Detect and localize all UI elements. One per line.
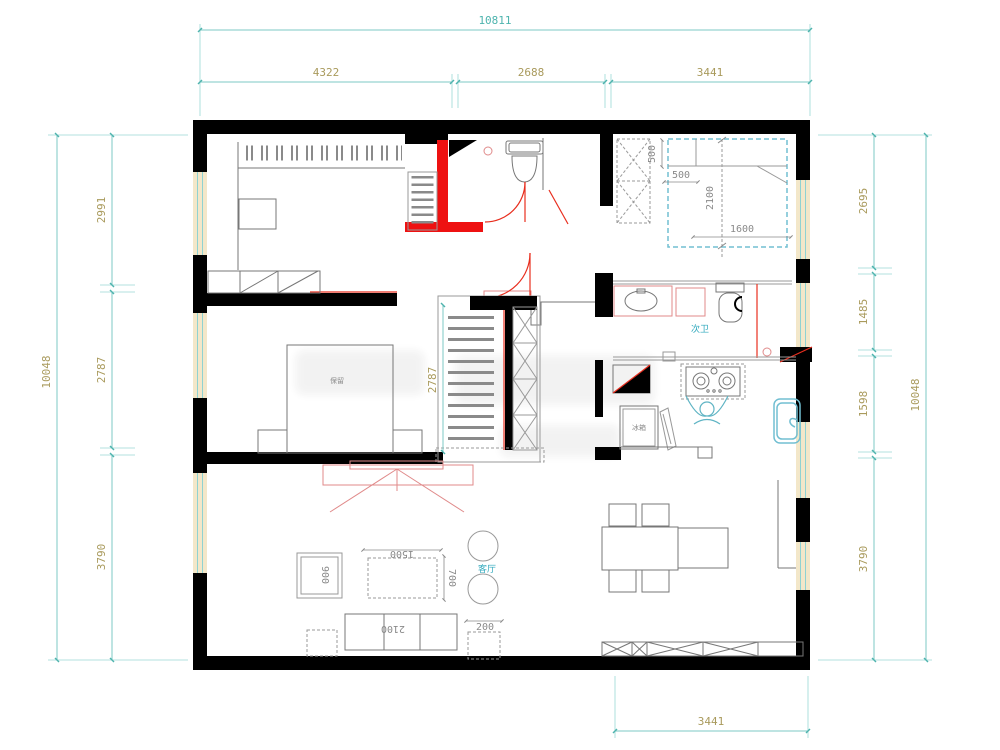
dim-left-seg2: 2787 xyxy=(95,357,108,384)
bathroom-2: 次卫 xyxy=(613,281,812,362)
dim-right-seg3: 1598 xyxy=(857,391,870,418)
wardrobe-x xyxy=(617,139,650,223)
lounge-chair-1 xyxy=(468,531,498,561)
bathroom-1 xyxy=(484,138,568,224)
dim-right-seg4: 3790 xyxy=(857,546,870,573)
dining-table-extension xyxy=(678,528,728,568)
toilet-2-icon xyxy=(716,283,744,322)
bed-3 xyxy=(668,139,787,258)
inner-walls xyxy=(200,134,621,464)
svg-text:1500: 1500 xyxy=(390,548,414,559)
dim-top-overall: 10811 xyxy=(478,14,511,27)
dining-area xyxy=(602,504,803,656)
svg-text:500: 500 xyxy=(672,170,690,181)
dim-left-seg1: 2991 xyxy=(95,197,108,224)
chair xyxy=(609,504,636,526)
svg-text:2100: 2100 xyxy=(705,186,716,210)
bottom-cabinets-x xyxy=(602,642,803,656)
floor-drain-icon xyxy=(484,147,492,155)
dresser xyxy=(239,199,276,229)
chair xyxy=(642,570,669,592)
dim-hall-closet: 2787 xyxy=(426,367,439,394)
dim-left-seg3: 3790 xyxy=(95,544,108,571)
dim-top-seg1: 4322 xyxy=(313,66,340,79)
vanity-counter xyxy=(614,286,672,316)
coffee-table: 1500 700 xyxy=(363,548,457,600)
chair xyxy=(609,570,636,592)
dim-left-overall: 10048 xyxy=(40,355,53,388)
bedroom-3: 500 500 2100 1600 xyxy=(617,137,791,258)
person-figure xyxy=(686,396,728,424)
fridge: 冰箱 xyxy=(620,406,676,450)
dim-top-seg2: 2688 xyxy=(518,66,545,79)
cloakroom xyxy=(208,142,437,293)
living-room: 900 1500 700 客厅 2100 200 xyxy=(297,461,502,659)
toilet-1-icon xyxy=(506,141,543,182)
shower-tray xyxy=(676,288,705,316)
stove-icon xyxy=(681,364,745,399)
lounge-chair-2 xyxy=(468,574,498,604)
sliding-wardrobe xyxy=(208,271,320,293)
dim-right-seg1: 2695 xyxy=(857,188,870,215)
chair xyxy=(642,504,669,526)
entry-door-icon xyxy=(484,253,531,298)
window-left xyxy=(193,172,207,573)
svg-text:700: 700 xyxy=(446,569,457,587)
dimension-top: 10811 4322 2688 3441 xyxy=(200,14,810,116)
kitchen: 冰箱 xyxy=(613,352,800,568)
dim-bottom-seg1: 3441 xyxy=(698,715,725,728)
tv-cabinet-plan xyxy=(323,461,473,512)
svg-text:200: 200 xyxy=(476,622,494,633)
corner-marker xyxy=(449,140,477,157)
svg-text:冰箱: 冰箱 xyxy=(632,423,646,432)
svg-text:1600: 1600 xyxy=(730,224,754,235)
bath1-door-icon xyxy=(485,182,525,222)
end-table-right: 200 xyxy=(466,621,502,659)
sink-basin-icon xyxy=(625,291,657,311)
bath2-label: 次卫 xyxy=(691,323,709,334)
svg-text:500: 500 xyxy=(647,145,658,163)
end-table-left xyxy=(307,630,337,656)
dimension-right: 2695 1485 1598 3790 10048 xyxy=(818,135,932,660)
floor-plan-drawing: 10811 4322 2688 3441 10048 2991 2787 379… xyxy=(0,0,1000,750)
floor-plan-canvas: 10811 4322 2688 3441 10048 2991 2787 379… xyxy=(0,0,1000,750)
dim-right-overall: 10048 xyxy=(909,378,922,411)
door-swing-diagonal xyxy=(549,190,568,224)
bed-2-note: 保留 xyxy=(330,376,344,385)
dimension-bottom: 3441 xyxy=(615,676,808,738)
dimension-left: 10048 2991 2787 3790 xyxy=(40,135,188,660)
dim-top-seg3: 3441 xyxy=(697,66,724,79)
svg-text:2100: 2100 xyxy=(381,623,405,634)
nightstand-right xyxy=(393,430,422,453)
nightstand-left xyxy=(258,430,287,453)
side-table: 900 xyxy=(297,553,342,598)
floor-drain-2-icon xyxy=(763,348,771,356)
sofa: 2100 xyxy=(345,614,457,650)
svg-text:900: 900 xyxy=(319,566,330,584)
living-room-label: 客厅 xyxy=(478,563,496,574)
dim-right-seg2: 1485 xyxy=(857,299,870,326)
dining-table xyxy=(602,527,678,570)
